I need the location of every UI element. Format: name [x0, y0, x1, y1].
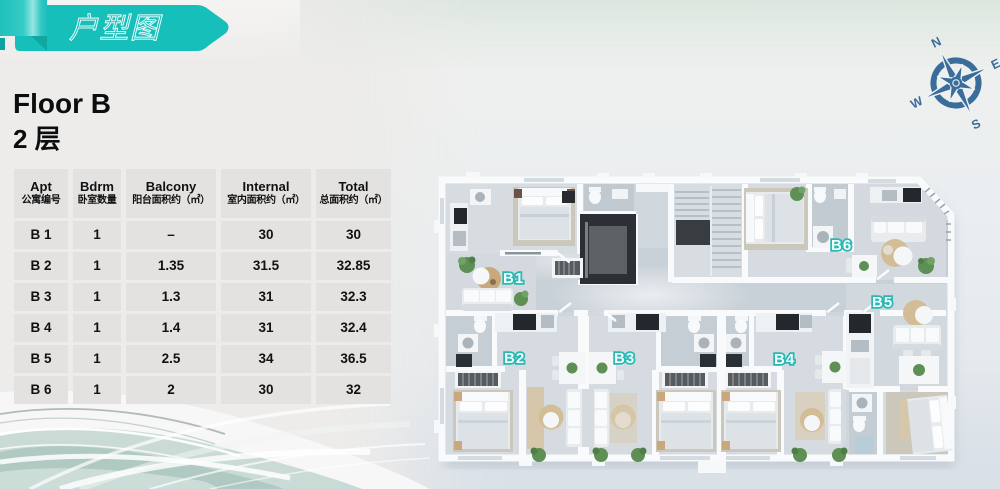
svg-text:户型图: 户型图 [69, 13, 163, 45]
svg-text:W: W [908, 94, 925, 112]
svg-text:B5: B5 [872, 294, 893, 311]
svg-text:S: S [969, 116, 983, 132]
svg-text:N: N [929, 34, 943, 51]
svg-text:B6: B6 [831, 237, 852, 254]
svg-text:E: E [989, 56, 1000, 72]
svg-text:B2: B2 [504, 350, 525, 367]
svg-text:B3: B3 [614, 350, 635, 367]
svg-text:B4: B4 [774, 351, 795, 368]
svg-text:B1: B1 [503, 270, 524, 287]
